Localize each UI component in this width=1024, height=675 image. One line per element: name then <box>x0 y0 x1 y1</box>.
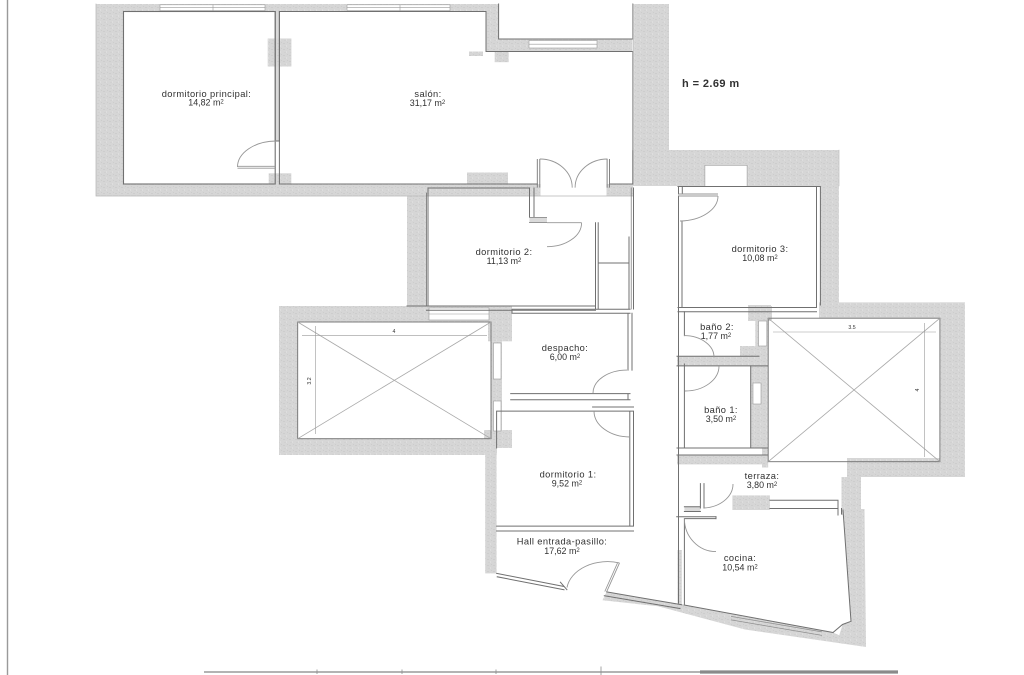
svg-text:6,00 m2: 6,00 m2 <box>550 352 581 362</box>
svg-text:3,50 m2: 3,50 m2 <box>706 414 737 424</box>
svg-text:3.5: 3.5 <box>848 325 855 331</box>
svg-text:3,80 m2: 3,80 m2 <box>747 480 778 490</box>
svg-text:31,17 m2: 31,17 m2 <box>410 98 446 108</box>
svg-text:10,54 m2: 10,54 m2 <box>722 563 758 573</box>
svg-text:9,52 m2: 9,52 m2 <box>552 479 583 489</box>
svg-text:3.2: 3.2 <box>307 377 313 384</box>
svg-text:4: 4 <box>915 388 921 391</box>
svg-text:Hall entrada-pasillo:: Hall entrada-pasillo: <box>517 537 608 547</box>
svg-text:1,77 m2: 1,77 m2 <box>701 331 732 341</box>
svg-text:cocina:: cocina: <box>724 553 756 563</box>
svg-text:17,62 m2: 17,62 m2 <box>544 546 580 556</box>
svg-text:10,08 m2: 10,08 m2 <box>742 253 778 263</box>
svg-text:11,13 m2: 11,13 m2 <box>487 256 522 266</box>
svg-text:h = 2.69 m: h = 2.69 m <box>682 78 740 90</box>
svg-text:14,82 m2: 14,82 m2 <box>188 98 224 108</box>
svg-text:4: 4 <box>393 329 396 335</box>
